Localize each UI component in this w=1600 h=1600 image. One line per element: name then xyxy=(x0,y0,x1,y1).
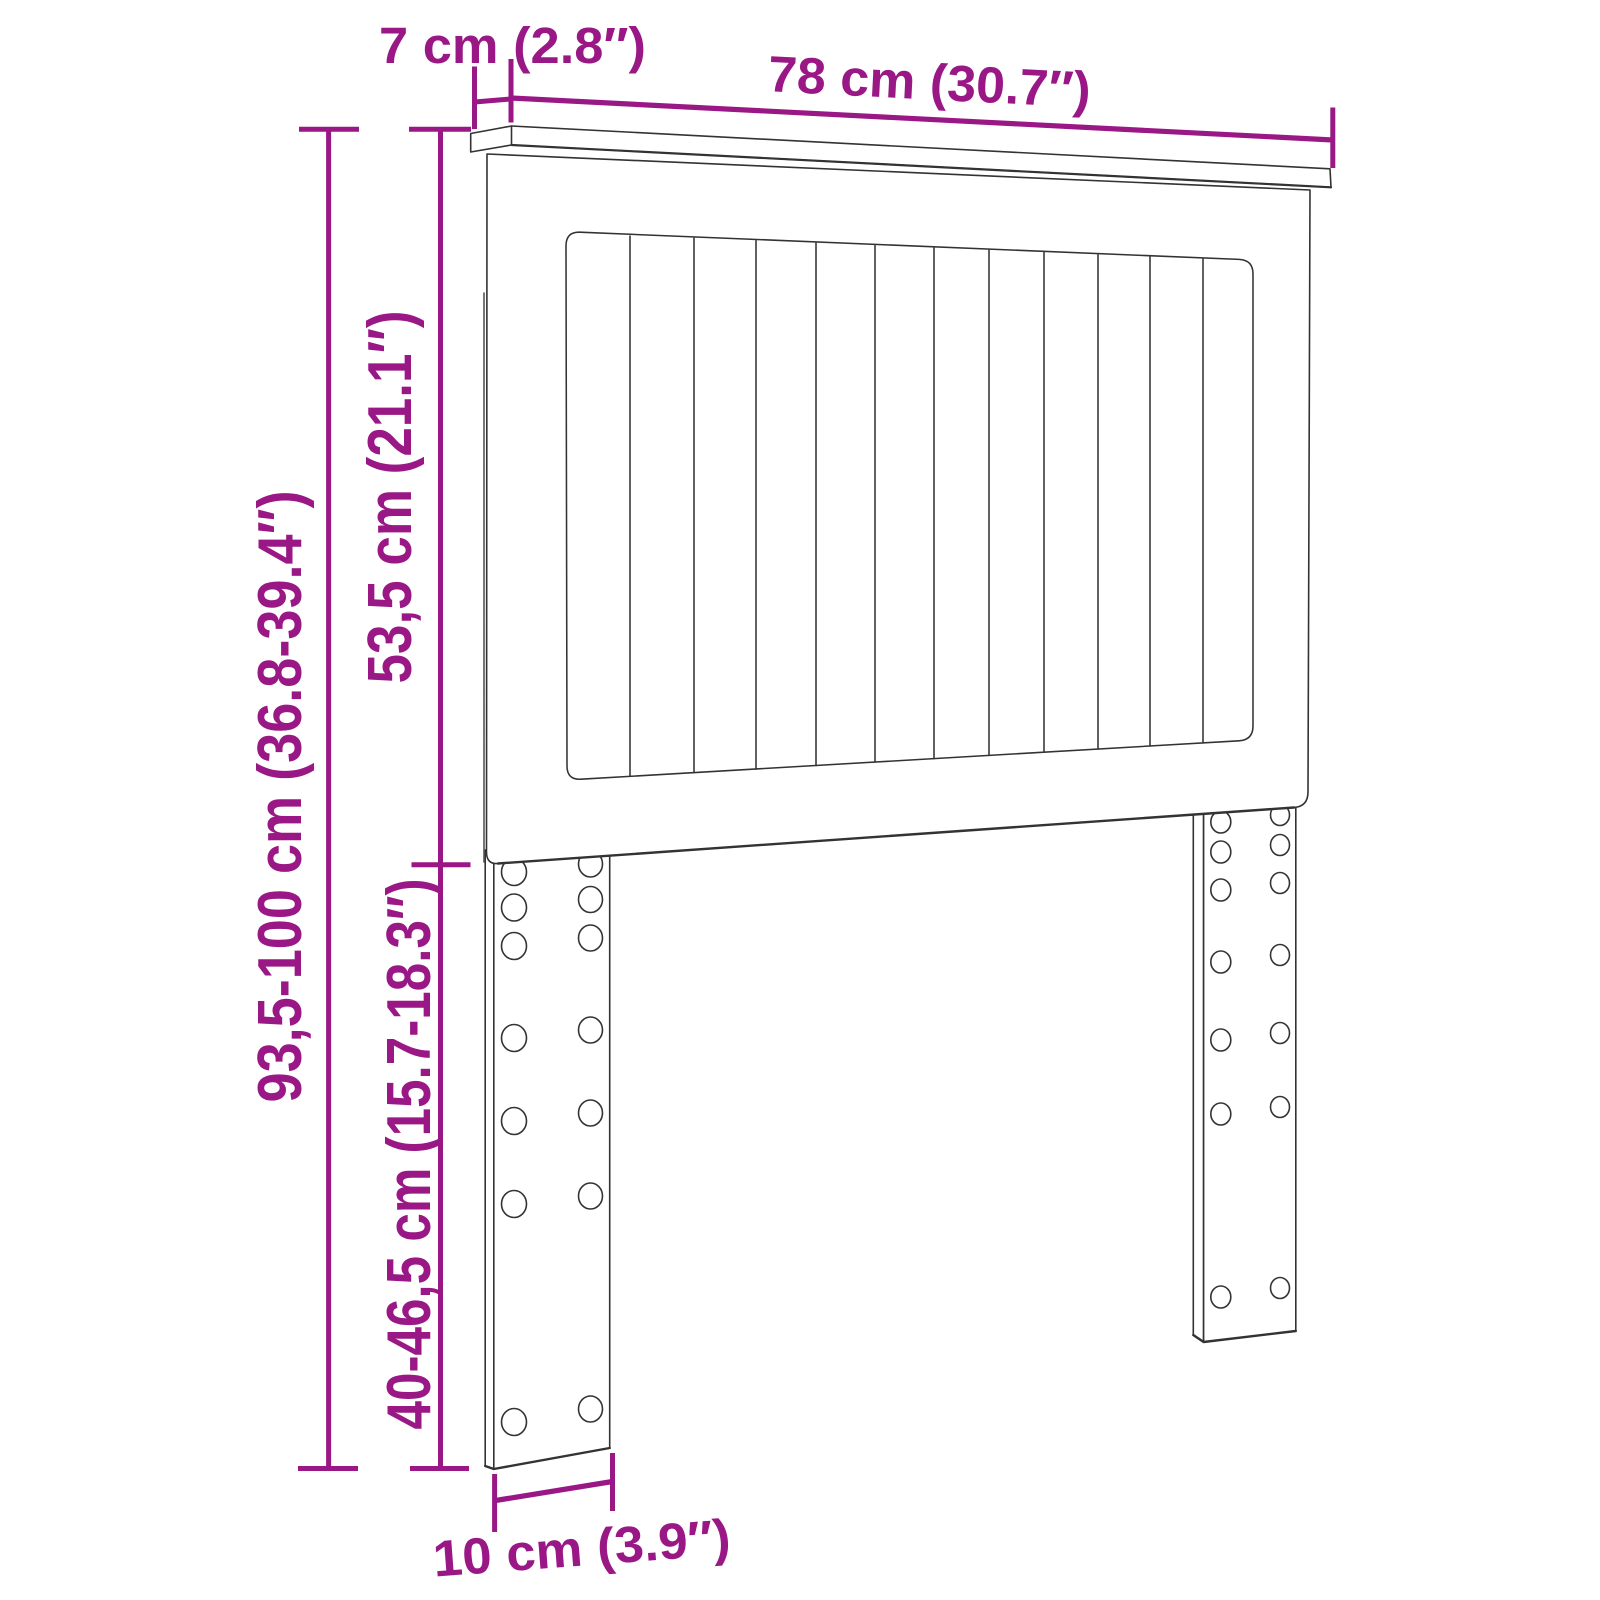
svg-text:40-46,5 cm (15.7-18.3″): 40-46,5 cm (15.7-18.3″) xyxy=(375,879,444,1430)
svg-text:53,5 cm (21.1″): 53,5 cm (21.1″) xyxy=(356,311,425,684)
svg-text:93,5-100 cm (36.8-39.4″): 93,5-100 cm (36.8-39.4″) xyxy=(246,491,315,1103)
svg-text:7 cm (2.8″): 7 cm (2.8″) xyxy=(379,17,646,74)
